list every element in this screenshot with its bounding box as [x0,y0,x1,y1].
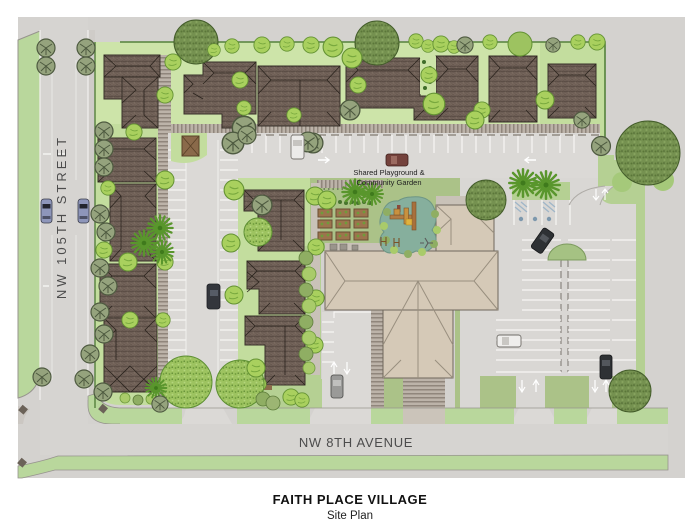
svg-text:FAITH PLACE VILLAGE: FAITH PLACE VILLAGE [273,492,428,507]
svg-text:Shared Playground &: Shared Playground & [353,168,424,177]
svg-text:NW 105TH STREET: NW 105TH STREET [54,135,69,299]
svg-text:Community Garden: Community Garden [356,178,421,187]
svg-text:Site Plan: Site Plan [327,510,373,522]
svg-text:NW 8TH AVENUE: NW 8TH AVENUE [299,435,413,450]
